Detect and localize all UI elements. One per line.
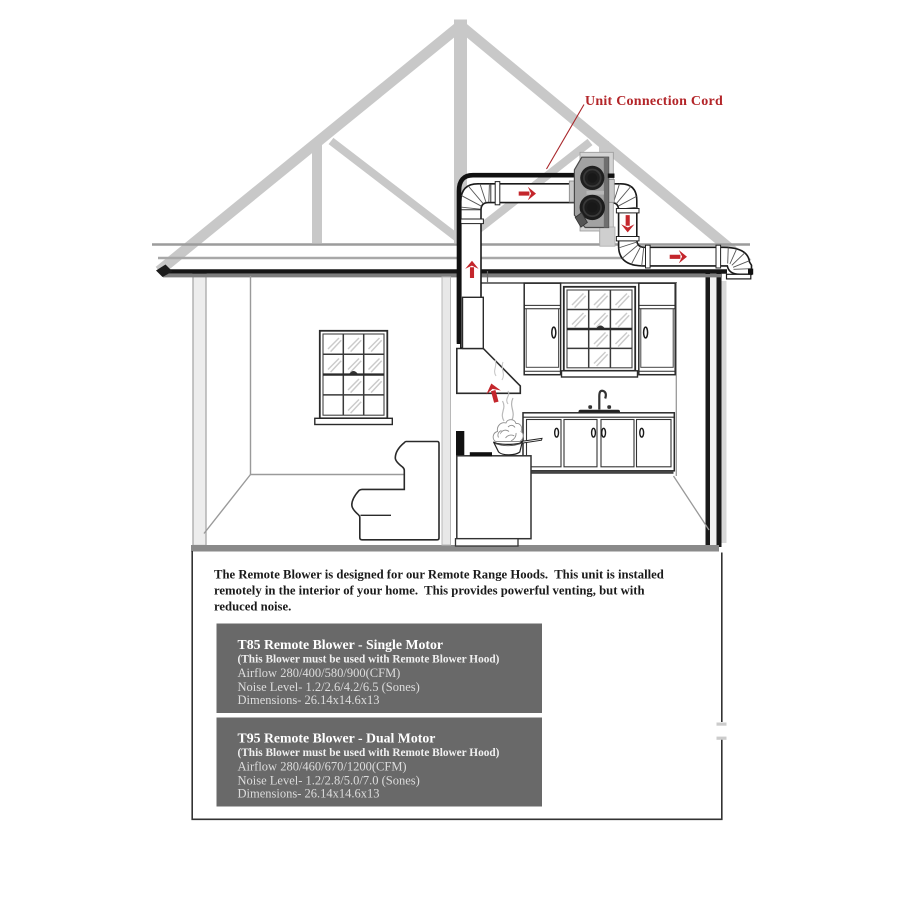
svg-text:Noise Level- 1.2/2.6/4.2/6.5 (: Noise Level- 1.2/2.6/4.2/6.5 (Sones) [238,680,420,694]
svg-text:Airflow 280/460/670/1200(CFM): Airflow 280/460/670/1200(CFM) [238,760,407,774]
svg-text:Dimensions- 26.14x14.6x13: Dimensions- 26.14x14.6x13 [238,693,380,707]
svg-text:(This Blower must be used with: (This Blower must be used with Remote Bl… [238,747,500,759]
svg-text:Airflow 280/400/580/900(CFM): Airflow 280/400/580/900(CFM) [238,666,401,680]
svg-text:reduced noise.: reduced noise. [214,600,291,614]
svg-text:Noise Level- 1.2/2.8/5.0/7.0 (: Noise Level- 1.2/2.8/5.0/7.0 (Sones) [238,774,420,788]
svg-text:T85 Remote Blower - Single Mot: T85 Remote Blower - Single Motor [238,637,444,652]
svg-text:remotely in the interior of yo: remotely in the interior of your home. T… [214,584,645,598]
svg-text:Dimensions- 26.14x14.6x13: Dimensions- 26.14x14.6x13 [238,787,380,801]
svg-text:T95 Remote Blower - Dual Motor: T95 Remote Blower - Dual Motor [238,731,436,746]
svg-text:(This Blower must be used with: (This Blower must be used with Remote Bl… [238,654,500,666]
svg-text:Unit Connection Cord: Unit Connection Cord [585,94,723,109]
svg-text:The Remote Blower is designed: The Remote Blower is designed for our Re… [214,568,664,582]
